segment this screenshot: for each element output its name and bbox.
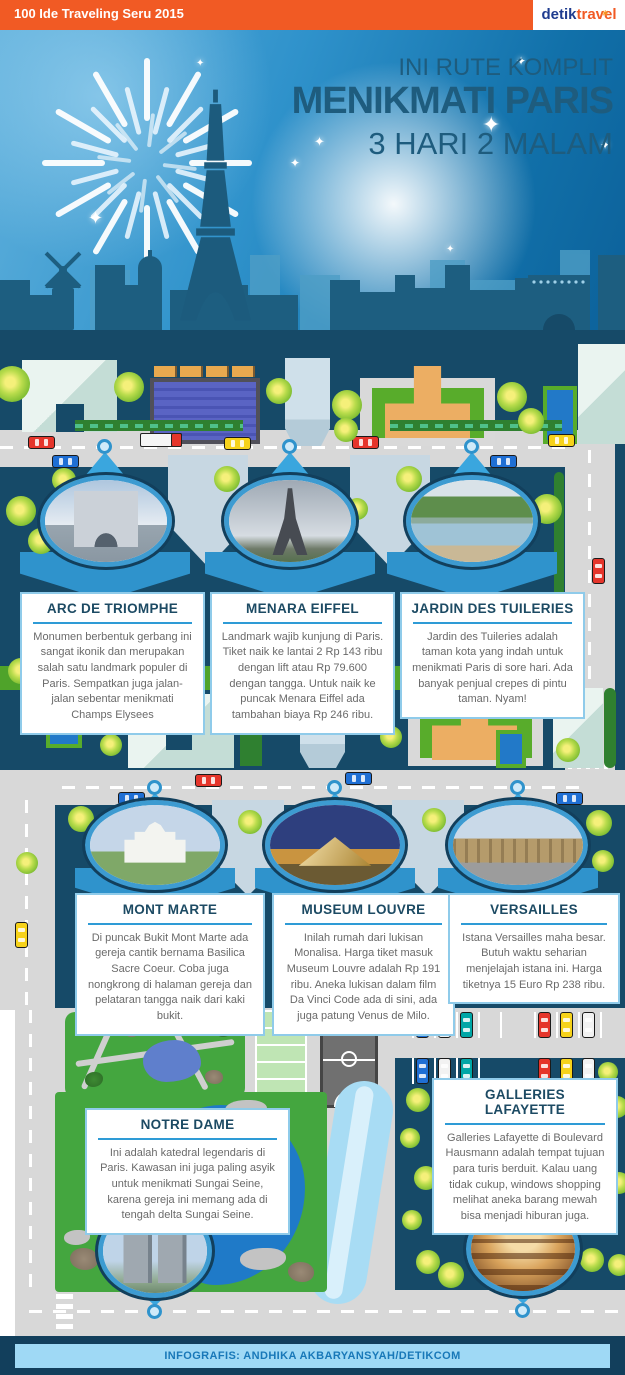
tree-icon	[16, 852, 38, 874]
photo-menara-eiffel	[224, 475, 356, 567]
hedge	[75, 420, 243, 431]
top-bar: 100 Ide Traveling Seru 2015 detiktravel	[0, 0, 625, 30]
parking-line	[556, 1012, 558, 1038]
tree-icon	[266, 378, 292, 404]
car-icon	[582, 1012, 595, 1038]
tree-icon	[406, 1088, 430, 1112]
road-centerline	[25, 800, 28, 1010]
map-pin-dot	[147, 780, 162, 795]
card-body: Monumen berbentuk gerbang ini sangat iko…	[31, 630, 194, 724]
card-title: MENARA EIFFEL	[221, 602, 384, 617]
logo-detik: detik	[541, 6, 576, 23]
card-menara-eiffel: MENARA EIFFEL Landmark wajib kunjung di …	[210, 592, 395, 735]
photo-menara-eiffel-scene	[229, 480, 351, 562]
car-icon	[460, 1012, 473, 1038]
map-pin-dot	[515, 1303, 530, 1318]
map-pin-dot	[510, 780, 525, 795]
tree-icon	[608, 1254, 625, 1276]
tree-icon	[586, 810, 612, 836]
road	[15, 1008, 55, 1336]
sparkle-icon	[196, 58, 204, 69]
card-body: Galleries Lafayette di Boulevard Hausman…	[443, 1131, 607, 1225]
page-title: MENIKMATI PARIS	[292, 80, 613, 123]
photo-mont-marte-scene	[90, 805, 220, 885]
card-title: VERSAILLES	[459, 903, 609, 918]
map-pin-dot	[464, 439, 479, 454]
card-title: JARDIN DES TUILERIES	[411, 602, 574, 617]
tree-icon	[556, 738, 580, 762]
sparkle-icon	[88, 208, 103, 229]
tree-icon	[100, 734, 122, 756]
road-centerline	[14, 786, 584, 789]
photo-mont-marte	[85, 800, 225, 890]
taxi-icon	[15, 922, 28, 948]
card-galleries-lafayette: GALLERIES LAFAYETTE Galleries Lafayette …	[432, 1078, 618, 1235]
car-icon	[490, 455, 517, 468]
tree-icon	[400, 1128, 420, 1148]
sparkle-icon	[290, 156, 300, 170]
card-title: GALLERIES LAFAYETTE	[443, 1088, 607, 1118]
tree-icon	[416, 1250, 440, 1274]
photo-jardin-des-tuileries	[406, 475, 538, 567]
header-kicker: INI RUTE KOMPLIT	[398, 54, 613, 82]
card-body: Jardin des Tuileries adalah taman kota y…	[411, 630, 574, 708]
card-body: Landmark wajib kunjung di Paris. Tiket n…	[221, 630, 384, 724]
building	[578, 344, 625, 444]
card-museum-louvre: MUSEUM LOUVRE Inilah rumah dari lukisan …	[272, 893, 455, 1036]
truck-icon	[140, 433, 182, 447]
map-pin-dot	[327, 780, 342, 795]
tree-icon	[422, 808, 446, 832]
photo-arc-de-triomphe-scene	[45, 480, 167, 562]
eiffel-tower-icon	[158, 88, 273, 330]
photo-versailles-scene	[453, 805, 583, 885]
car-icon	[28, 436, 55, 449]
tree-icon	[402, 1210, 422, 1230]
credit-bar: INFOGRAFIS: ANDHIKA AKBARYANSYAH/DETIKCO…	[15, 1344, 610, 1368]
taxi-icon	[560, 1012, 573, 1038]
map-pin-dot	[147, 1304, 162, 1319]
sparkle-icon	[314, 134, 325, 150]
crosswalk	[56, 1294, 73, 1334]
car-icon	[592, 558, 605, 584]
pool	[496, 730, 526, 768]
detiktravel-logo[interactable]: detiktravel	[533, 0, 625, 30]
tree-icon	[438, 1262, 464, 1288]
parking-line	[456, 1012, 458, 1038]
card-title: MONT MARTE	[86, 903, 254, 918]
bush-icon	[205, 1070, 223, 1084]
card-title: ARC DE TRIOMPHE	[31, 602, 194, 617]
parking-line	[578, 1012, 580, 1038]
card-mont-marte: MONT MARTE Di puncak Bukit Mont Marte ad…	[75, 893, 265, 1036]
title-rule	[445, 1123, 605, 1125]
photo-museum-louvre	[265, 800, 405, 890]
taxi-icon	[224, 437, 251, 450]
card-jardin-des-tuileries: JARDIN DES TUILERIES Jardin des Tuilerie…	[400, 592, 585, 719]
header-subtitle: 3 HARI 2 MALAM	[368, 126, 613, 162]
series-title: 100 Ide Traveling Seru 2015	[14, 6, 184, 21]
card-arc-de-triomphe: ARC DE TRIOMPHE Monumen berbentuk gerban…	[20, 592, 205, 735]
card-body: Ini adalah katedral legendaris di Paris.…	[96, 1146, 279, 1224]
photo-versailles	[448, 800, 588, 890]
header-hero: INI RUTE KOMPLIT MENIKMATI PARIS 3 HARI …	[0, 30, 625, 330]
car-icon	[556, 792, 583, 805]
taxi-icon	[548, 434, 575, 447]
tree-icon	[334, 418, 358, 442]
tree-icon	[238, 810, 262, 834]
paris-skyline-silhouette	[0, 230, 625, 330]
title-rule	[98, 1138, 277, 1140]
court-line	[341, 1051, 357, 1067]
card-notre-dame: NOTRE DAME Ini adalah katedral legendari…	[85, 1108, 290, 1235]
tree-icon	[114, 372, 144, 402]
parking-line	[412, 1058, 414, 1084]
card-title: NOTRE DAME	[96, 1118, 279, 1133]
tree-icon	[497, 382, 527, 412]
building-skylights	[154, 366, 256, 377]
tree-icon	[6, 496, 36, 526]
map-pin-dot	[282, 439, 297, 454]
bush-icon	[288, 1262, 314, 1282]
car-icon	[52, 455, 79, 468]
bush-icon	[85, 1072, 103, 1087]
parking-line	[500, 1012, 502, 1038]
title-rule	[461, 923, 607, 925]
card-body: Inilah rumah dari lukisan Monalisa. Harg…	[283, 931, 444, 1025]
parking-line	[534, 1012, 536, 1038]
card-versailles: VERSAILLES Istana Versailles maha besar.…	[448, 893, 620, 1004]
tree-icon	[518, 408, 544, 434]
tree-icon	[580, 1248, 604, 1272]
card-body: Di puncak Bukit Mont Marte ada gereja ca…	[86, 931, 254, 1025]
building	[285, 358, 330, 446]
title-rule	[285, 923, 442, 925]
car-icon	[345, 772, 372, 785]
title-rule	[88, 923, 252, 925]
car-icon	[416, 1058, 429, 1084]
car-icon	[538, 1012, 551, 1038]
car-icon	[352, 436, 379, 449]
footer: INFOGRAFIS: ANDHIKA AKBARYANSYAH/DETIKCO…	[0, 1336, 625, 1375]
road-centerline	[29, 1310, 625, 1313]
tree-icon	[592, 850, 614, 872]
photo-jardin-des-tuileries-scene	[411, 480, 533, 562]
bush-icon	[70, 1248, 98, 1270]
parking-line	[478, 1012, 480, 1038]
hedge	[604, 688, 616, 768]
title-rule	[223, 622, 382, 624]
photo-arc-de-triomphe	[40, 475, 172, 567]
title-rule	[413, 622, 572, 624]
map-pin-dot	[97, 439, 112, 454]
infographic-canvas: 100 Ide Traveling Seru 2015 detiktravel …	[0, 0, 625, 1375]
tree-icon	[332, 390, 362, 420]
card-body: Istana Versailles maha besar. Butuh wakt…	[459, 931, 609, 993]
car-icon	[195, 774, 222, 787]
parking-line	[600, 1012, 602, 1038]
photo-museum-louvre-scene	[270, 805, 400, 885]
pond	[143, 1040, 201, 1082]
road-centerline	[29, 1010, 32, 1310]
title-rule	[33, 622, 192, 624]
logo-travel: travel	[576, 6, 616, 23]
card-title: MUSEUM LOUVRE	[283, 903, 444, 918]
